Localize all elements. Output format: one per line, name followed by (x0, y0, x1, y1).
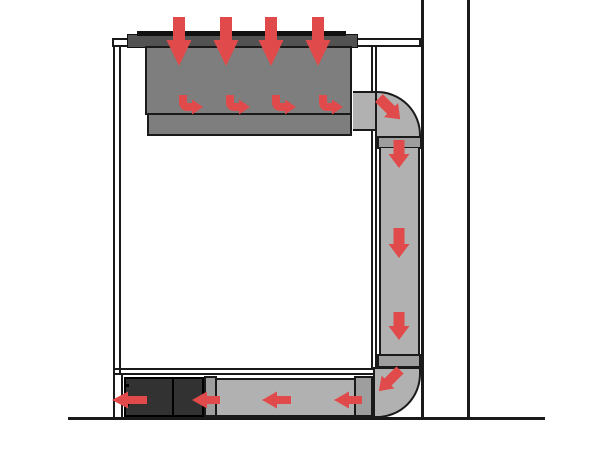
cabinet-plinth-line (121, 374, 123, 418)
blower-clip-top (124, 384, 129, 387)
duct-horizontal (215, 378, 356, 417)
duct-stub (353, 91, 376, 131)
cabinet-bottom-line-upper (113, 368, 378, 370)
duct-flange-left (204, 376, 217, 417)
extractor-plenum (145, 46, 352, 115)
blower-unit (124, 377, 204, 417)
wall-inner-line (421, 0, 424, 419)
wall-outer-line (467, 0, 470, 419)
duct-flange-right (354, 376, 373, 417)
cabinet-left-outer-line (113, 46, 115, 418)
duct-flange-bottom (377, 354, 421, 368)
cooktop-glass-surface (137, 31, 346, 36)
extractor-plenum-lower (147, 113, 352, 136)
cabinet-bottom-line-lower (113, 373, 378, 375)
cabinet-left-inner-line (119, 46, 121, 374)
floor-line (68, 417, 545, 420)
blower-clip-bottom (124, 403, 129, 406)
duct-vertical (379, 148, 420, 356)
ventilation-airflow-diagram (0, 0, 600, 450)
duct-elbow-bottom (373, 367, 421, 418)
blower-unit-divider (172, 379, 174, 415)
